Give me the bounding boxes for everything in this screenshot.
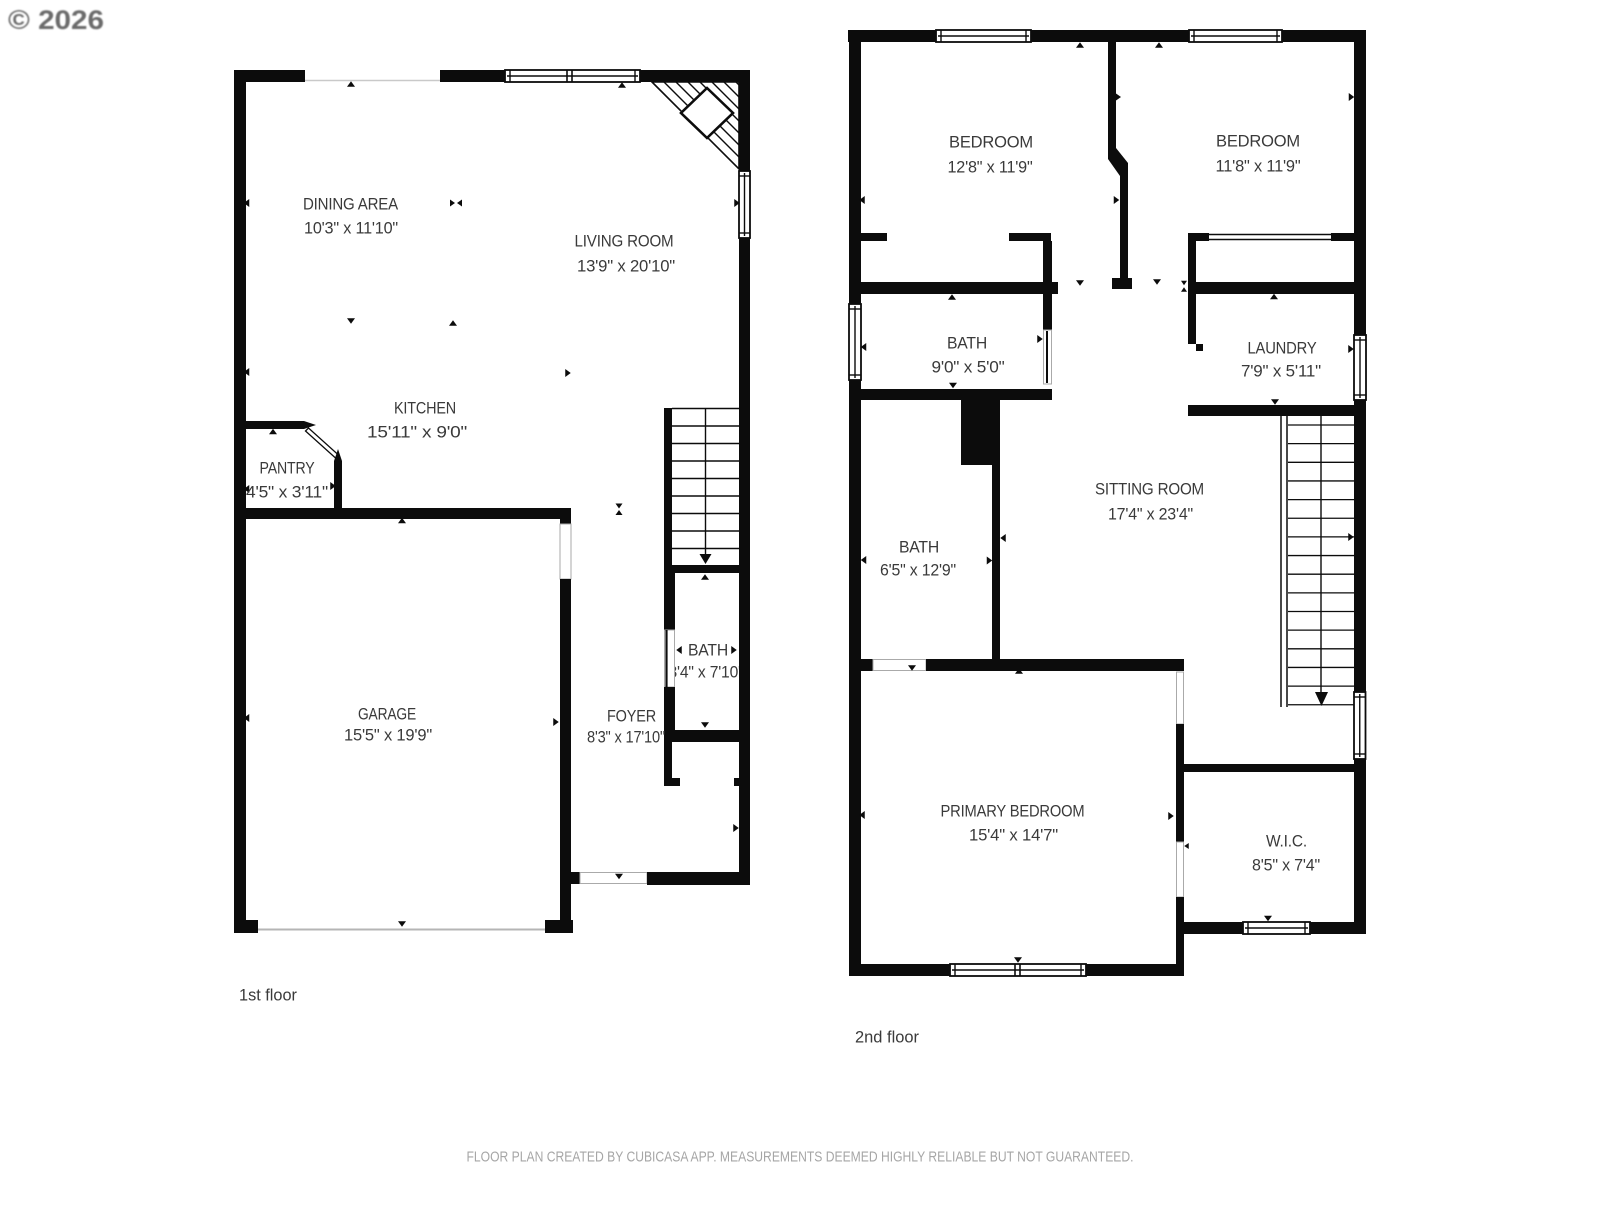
svg-text:6'5" x 12'9": 6'5" x 12'9"	[880, 561, 956, 580]
svg-text:15'4" x 14'7": 15'4" x 14'7"	[969, 826, 1058, 845]
svg-text:SITTING ROOM: SITTING ROOM	[1095, 480, 1204, 499]
svg-text:15'5" x 19'9": 15'5" x 19'9"	[344, 726, 432, 745]
svg-text:15'11" x 9'0": 15'11" x 9'0"	[367, 423, 467, 442]
svg-text:8'5" x 7'4": 8'5" x 7'4"	[1252, 856, 1320, 875]
svg-text:BATH: BATH	[899, 538, 939, 557]
svg-text:2nd floor: 2nd floor	[855, 1028, 919, 1047]
svg-text:BATH: BATH	[688, 641, 728, 660]
svg-text:3'4" x 7'10": 3'4" x 7'10"	[669, 663, 744, 682]
svg-text:10'3" x 11'10": 10'3" x 11'10"	[304, 219, 398, 238]
svg-text:© 2026: © 2026	[8, 5, 104, 35]
svg-text:8'3" x 17'10": 8'3" x 17'10"	[587, 728, 665, 747]
svg-text:LIVING ROOM: LIVING ROOM	[575, 232, 674, 251]
svg-text:BATH: BATH	[947, 334, 987, 353]
svg-text:1st floor: 1st floor	[239, 986, 297, 1005]
svg-text:9'0" x 5'0": 9'0" x 5'0"	[932, 358, 1005, 377]
svg-text:BEDROOM: BEDROOM	[949, 133, 1033, 152]
svg-text:GARAGE: GARAGE	[358, 705, 416, 724]
svg-text:LAUNDRY: LAUNDRY	[1248, 339, 1317, 358]
svg-text:DINING AREA: DINING AREA	[303, 195, 399, 214]
svg-text:FOYER: FOYER	[607, 707, 656, 726]
svg-text:BEDROOM: BEDROOM	[1216, 132, 1300, 151]
svg-text:W.I.C.: W.I.C.	[1266, 832, 1307, 851]
svg-text:13'9" x 20'10": 13'9" x 20'10"	[577, 257, 675, 276]
svg-text:PRIMARY BEDROOM: PRIMARY BEDROOM	[941, 802, 1085, 821]
svg-text:11'8" x 11'9": 11'8" x 11'9"	[1216, 157, 1301, 176]
svg-text:17'4" x 23'4": 17'4" x 23'4"	[1108, 505, 1193, 524]
svg-text:12'8" x 11'9": 12'8" x 11'9"	[948, 158, 1033, 177]
svg-text:KITCHEN: KITCHEN	[394, 399, 456, 418]
svg-text:FLOOR PLAN CREATED BY CUBICASA: FLOOR PLAN CREATED BY CUBICASA APP. MEAS…	[467, 1149, 1134, 1166]
svg-text:4'5" x 3'11": 4'5" x 3'11"	[246, 483, 328, 502]
svg-text:PANTRY: PANTRY	[260, 459, 315, 478]
svg-text:7'9" x 5'11": 7'9" x 5'11"	[1241, 362, 1321, 381]
